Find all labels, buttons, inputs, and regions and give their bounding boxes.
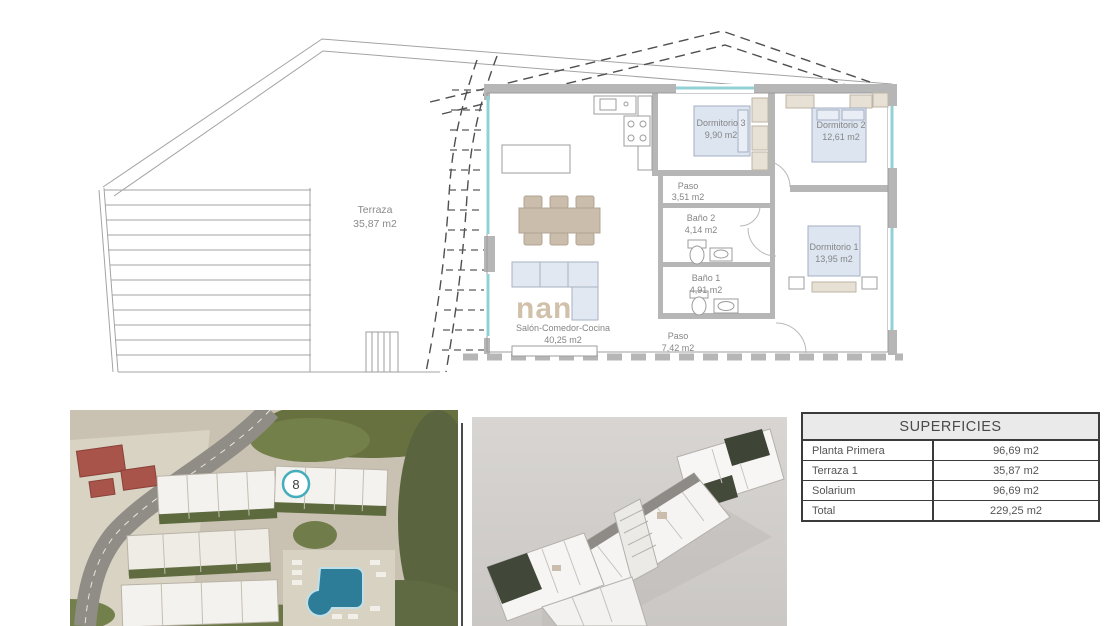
room-area-paso2: 7,42 m2	[662, 343, 695, 353]
room-area-paso1: 3,51 m2	[672, 192, 705, 202]
pergola-dashed-slats	[442, 90, 484, 350]
table-row: Planta Primera 96,69 m2	[803, 441, 1098, 461]
room-area-bano2: 4,14 m2	[685, 225, 718, 235]
superficies-table: SUPERFICIES Planta Primera 96,69 m2 Terr…	[801, 412, 1100, 522]
table-row: Terraza 1 35,87 m2	[803, 461, 1098, 481]
row-label: Total	[803, 501, 934, 520]
row-label: Solarium	[803, 481, 934, 500]
row-value: 35,87 m2	[934, 461, 1098, 480]
room-area-dormitorio2: 12,61 m2	[822, 132, 860, 142]
dining-set	[519, 196, 600, 245]
row-value: 96,69 m2	[934, 441, 1098, 460]
unit-marker-number: 8	[292, 477, 299, 492]
room-label-paso2: Paso	[668, 331, 689, 341]
listing-flyer: nan Terraza 35,87 m2 Salón-Comedor-Cocin…	[0, 0, 1110, 626]
floor-plan-drawing: nan Terraza 35,87 m2 Salón-Comedor-Cocin…	[0, 0, 1110, 402]
room-label-salon: Salón-Comedor-Cocina	[516, 323, 610, 333]
superficies-table-title: SUPERFICIES	[803, 414, 1098, 441]
room-label-bano2: Baño 2	[687, 213, 716, 223]
row-value: 96,69 m2	[934, 481, 1098, 500]
row-value: 229,25 m2	[934, 501, 1098, 520]
row-label: Terraza 1	[803, 461, 934, 480]
image-divider	[461, 423, 463, 626]
tv-bench	[512, 346, 597, 356]
room-label-dormitorio3: Dormitorio 3	[696, 118, 745, 128]
axonometric-render	[472, 417, 787, 626]
room-area-salon: 40,25 m2	[544, 335, 582, 345]
room-area-dormitorio3: 9,90 m2	[705, 130, 738, 140]
table-row: Solarium 96,69 m2	[803, 481, 1098, 501]
room-label-terraza: Terraza	[357, 204, 392, 216]
room-area-dormitorio1: 13,95 m2	[815, 254, 853, 264]
room-area-bano1: 4,91 m2	[690, 285, 723, 295]
room-label-dormitorio1: Dormitorio 1	[809, 242, 858, 252]
room-label-dormitorio2: Dormitorio 2	[816, 120, 865, 130]
table-row: Total 229,25 m2	[803, 501, 1098, 520]
unit-marker: 8	[283, 471, 309, 497]
watermark-text: nan	[516, 292, 572, 325]
stairs-hatch	[366, 332, 398, 372]
room-label-paso1: Paso	[678, 181, 699, 191]
row-label: Planta Primera	[803, 441, 934, 460]
aerial-site-photo: 8	[70, 410, 458, 626]
pool-area	[283, 550, 395, 626]
room-area-terraza: 35,87 m2	[353, 218, 397, 230]
room-label-bano1: Baño 1	[692, 273, 721, 283]
